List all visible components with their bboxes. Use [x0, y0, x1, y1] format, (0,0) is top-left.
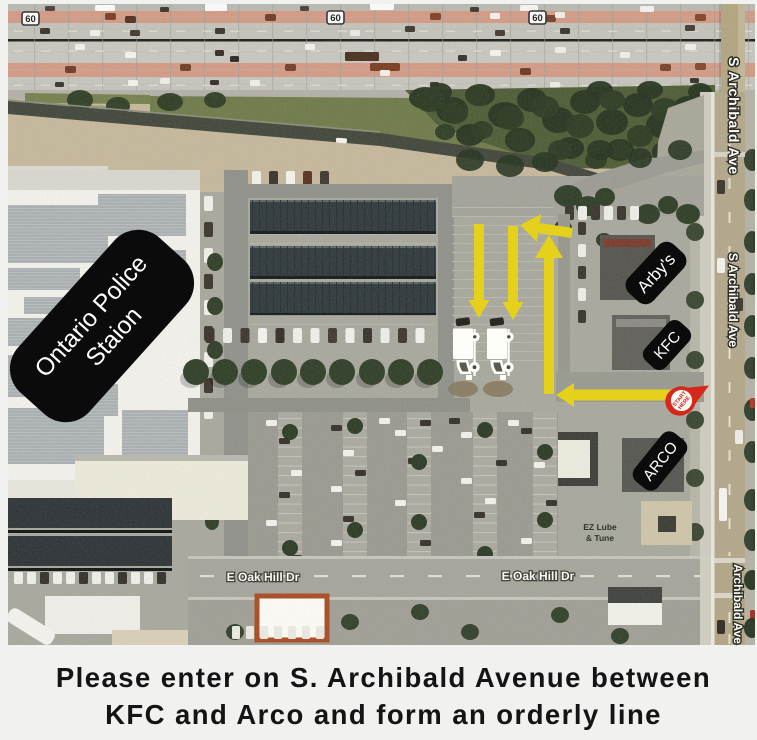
svg-text:S Archibald Ave: S Archibald Ave — [726, 57, 742, 175]
svg-text:S Archibald Ave: S Archibald Ave — [726, 253, 740, 348]
svg-text:Archibald Ave: Archibald Ave — [731, 564, 745, 644]
